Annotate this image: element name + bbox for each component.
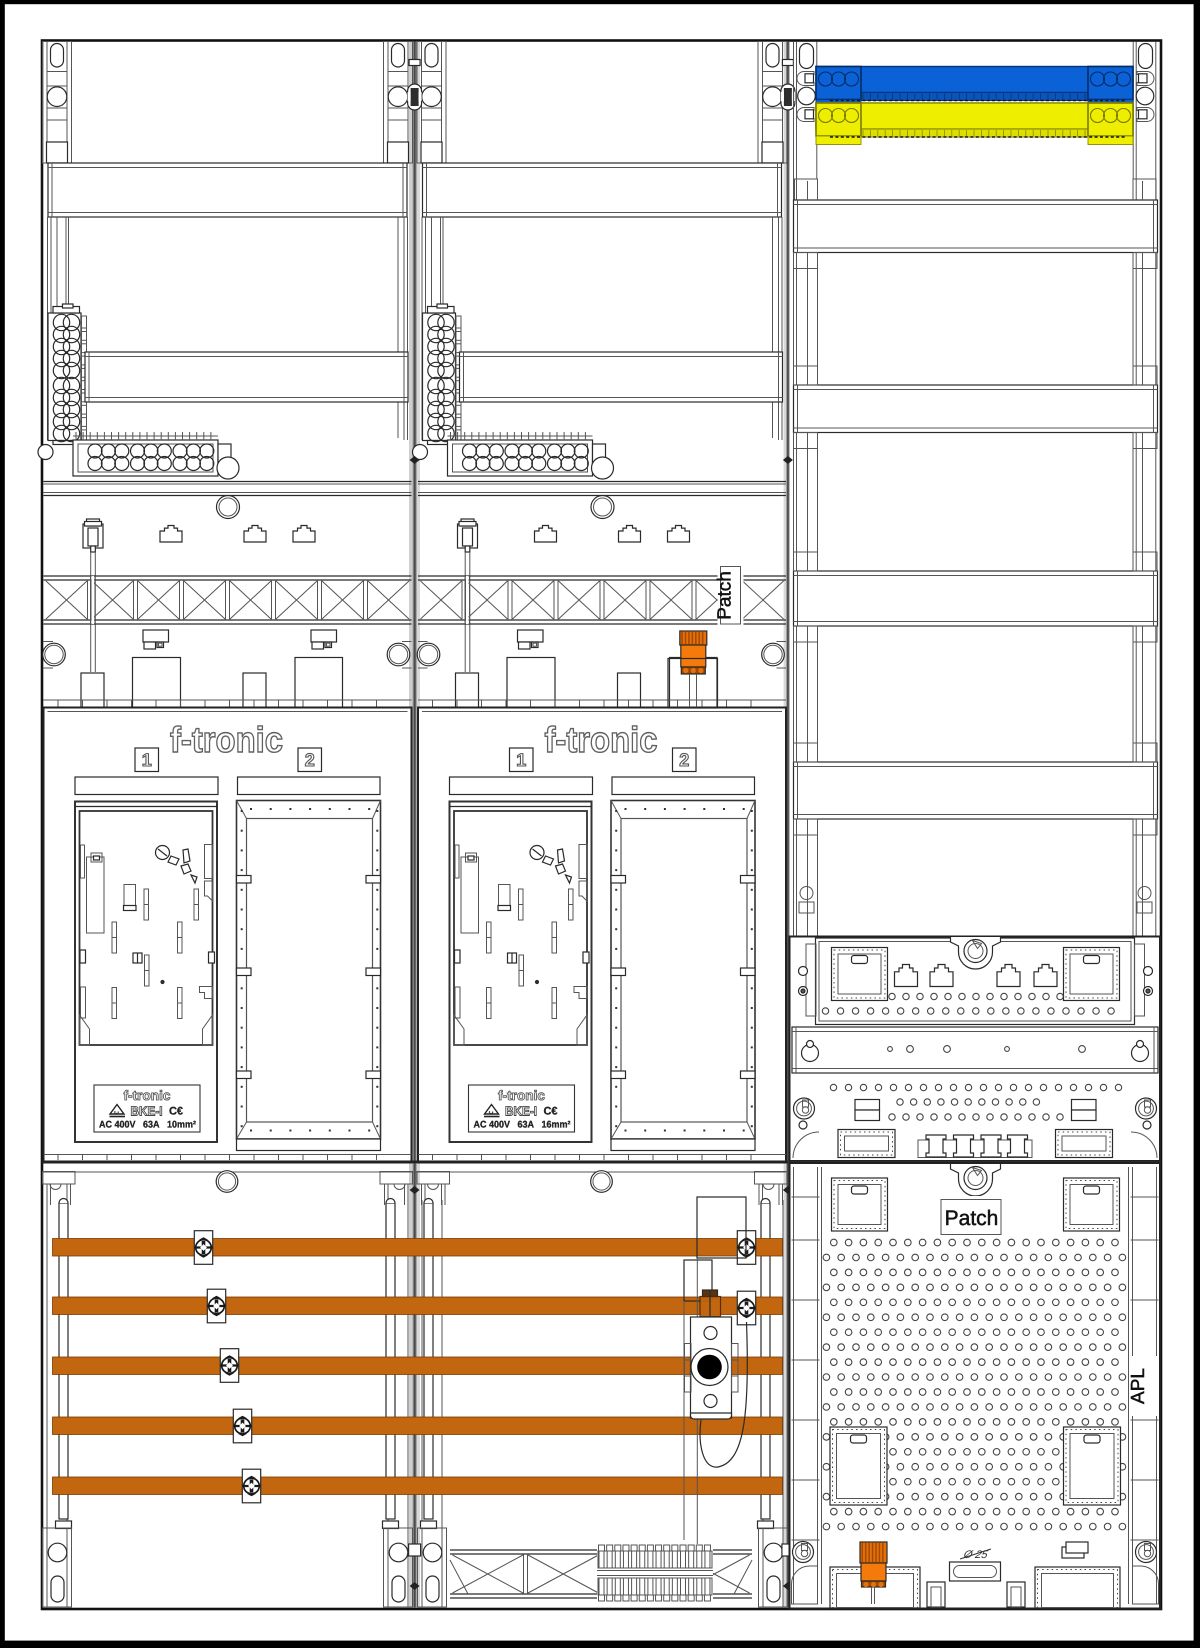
svg-text:f-tronic: f-tronic: [498, 1088, 545, 1103]
svg-text:1: 1: [142, 750, 152, 770]
svg-text:1: 1: [516, 750, 526, 770]
svg-text:f-t: f-t: [489, 1111, 494, 1117]
svg-text:C€: C€: [169, 1106, 183, 1118]
svg-text:f-t: f-t: [114, 1111, 119, 1117]
svg-text:2: 2: [305, 750, 315, 770]
svg-text:f-tronic: f-tronic: [170, 719, 283, 760]
svg-text:APL: APL: [1128, 1368, 1149, 1404]
svg-text:BKE-I: BKE-I: [505, 1104, 537, 1119]
svg-text:BKE-I: BKE-I: [131, 1104, 163, 1119]
svg-text:Patch: Patch: [945, 1207, 999, 1230]
svg-text:f-tronic: f-tronic: [124, 1088, 171, 1103]
svg-text:AC 400V 63A 16mm²: AC 400V 63A 16mm²: [474, 1120, 571, 1131]
svg-text:2: 2: [679, 750, 689, 770]
svg-text:f-tronic: f-tronic: [545, 719, 658, 760]
svg-text:Patch: Patch: [715, 571, 736, 620]
svg-text:AC 400V 63A 10mm²: AC 400V 63A 10mm²: [99, 1120, 196, 1131]
svg-text:C€: C€: [543, 1106, 557, 1118]
